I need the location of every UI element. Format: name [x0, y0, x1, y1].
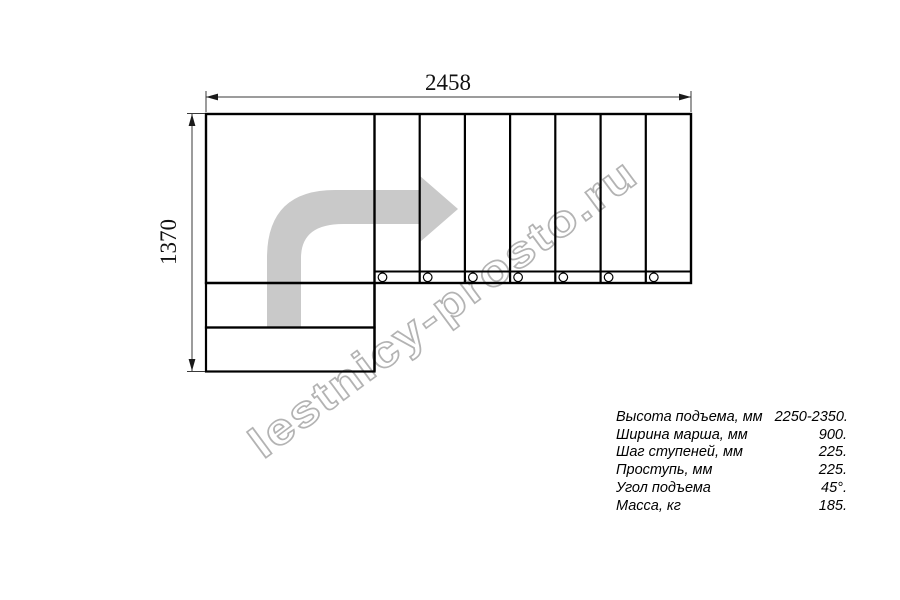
baluster-marker [604, 273, 613, 282]
baluster-marker [650, 273, 659, 282]
spec-row: Шаг ступеней, мм 225. [616, 444, 847, 462]
baluster-marker [423, 273, 432, 282]
dimension-arrow-down-icon [189, 359, 196, 371]
spec-label: Ширина марша, мм [616, 427, 748, 445]
spec-row: Ширина марша, мм 900. [616, 427, 847, 445]
baluster-marker [559, 273, 568, 282]
spec-value: 225. [819, 444, 847, 462]
spec-table: Высота подъема, мм 2250-2350. Ширина мар… [616, 409, 847, 515]
spec-row: Высота подъема, мм 2250-2350. [616, 409, 847, 427]
spec-value: 2250-2350. [775, 409, 848, 427]
baluster-marker [378, 273, 387, 282]
spec-value: 45°. [821, 480, 847, 498]
spec-row: Угол подъема 45°. [616, 480, 847, 498]
spec-row: Масса, кг 185. [616, 498, 847, 516]
height-dimension [187, 114, 205, 372]
spec-label: Масса, кг [616, 498, 681, 516]
spec-label: Угол подъема [616, 480, 711, 498]
spec-row: Проступь, мм 225. [616, 462, 847, 480]
spec-label: Шаг ступеней, мм [616, 444, 743, 462]
width-dimension-label: 2458 [425, 70, 471, 95]
baluster-marker [469, 273, 478, 282]
baluster-marker [514, 273, 523, 282]
dimension-arrow-up-icon [189, 114, 196, 126]
stair-plan-figure: lestnicy-prosto.ru [0, 0, 900, 600]
dimension-arrow-left-icon [206, 94, 218, 101]
spec-value: 900. [819, 427, 847, 445]
spec-label: Проступь, мм [616, 462, 712, 480]
spec-label: Высота подъема, мм [616, 409, 763, 427]
height-dimension-label: 1370 [156, 219, 181, 265]
dimension-arrow-right-icon [679, 94, 691, 101]
spec-value: 185. [819, 498, 847, 516]
spec-value: 225. [819, 462, 847, 480]
